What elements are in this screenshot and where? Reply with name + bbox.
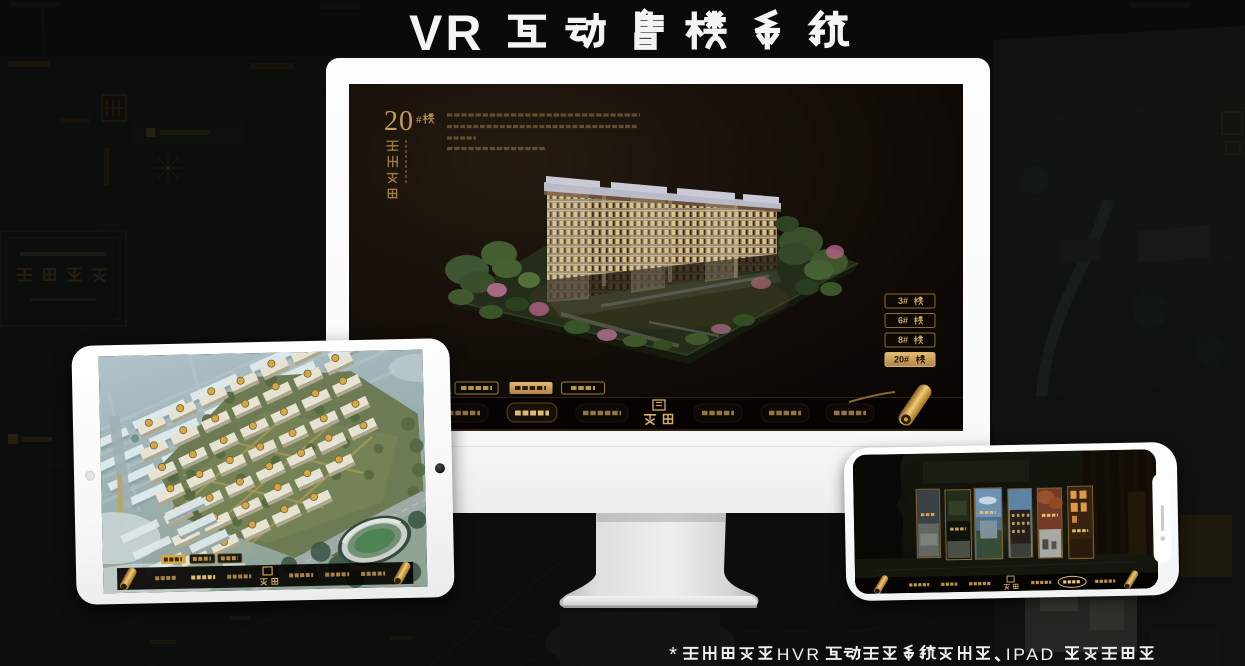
svg-text:20#: 20# <box>894 355 909 365</box>
svg-text:IPAD: IPAD <box>1006 644 1056 664</box>
svg-text:6#: 6# <box>898 316 908 326</box>
svg-text:3#: 3# <box>898 296 908 306</box>
svg-text:#: # <box>416 114 422 126</box>
svg-text:VR: VR <box>409 5 484 60</box>
svg-text:20: 20 <box>384 106 414 137</box>
svg-text:*: * <box>669 644 677 666</box>
svg-text:HVR: HVR <box>777 644 822 664</box>
svg-text:8#: 8# <box>898 335 908 345</box>
